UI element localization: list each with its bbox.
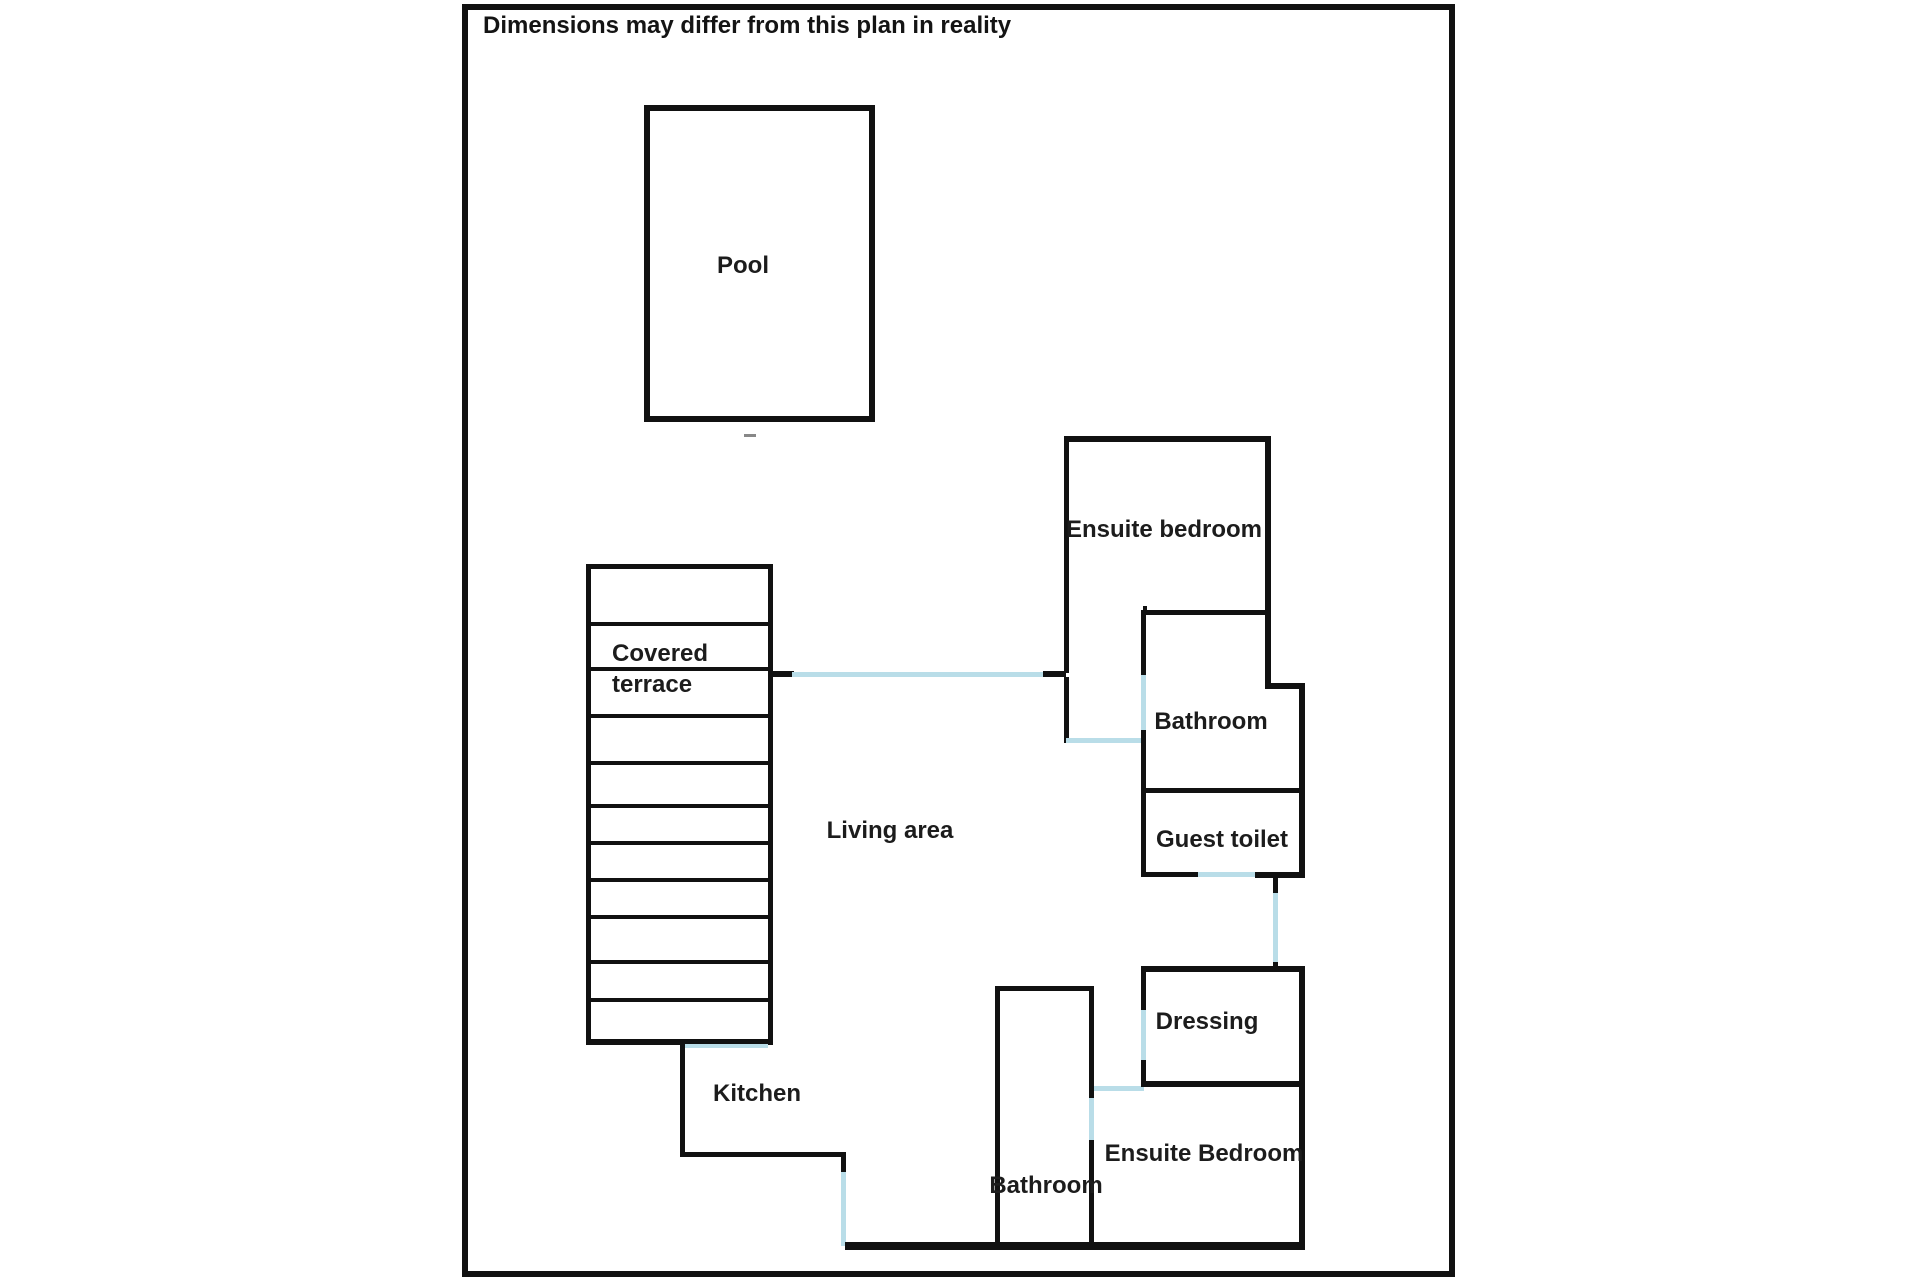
pool-wall-left: [644, 105, 650, 422]
dressing-door-opening: [1141, 1010, 1146, 1060]
bathroom1-wall-top: [1141, 610, 1268, 615]
terrace-slat-8: [586, 915, 773, 919]
label-ensuite-bedroom-top: Ensuite bedroom: [1066, 516, 1262, 544]
terrace-bottom-door-opening: [683, 1044, 768, 1048]
kitchen-wall-left: [680, 1043, 685, 1157]
terrace-slat-3: [586, 714, 773, 718]
label-kitchen: Kitchen: [713, 1080, 801, 1108]
ensuite1-wall-top: [1064, 436, 1271, 442]
outer-border-left: [462, 4, 468, 1277]
dressing-wall-top: [1141, 966, 1305, 972]
terrace-wall-top: [586, 564, 773, 569]
label-bathroom-right: Bathroom: [1154, 708, 1267, 736]
terrace-slat-4: [586, 761, 773, 765]
kitchen-door-opening: [841, 1172, 846, 1246]
bathroom1-wall-left-a: [1141, 610, 1146, 675]
bathroom1-wall-right: [1299, 683, 1305, 877]
terrace-slat-7: [586, 878, 773, 882]
label-guest-toilet: Guest toilet: [1156, 826, 1288, 854]
bathroom1-wall-left-b: [1141, 730, 1146, 875]
bathroom2-wall-top: [995, 986, 1093, 991]
bathroom2-wall-left: [995, 986, 1000, 1247]
outer-border-top: [462, 4, 1455, 10]
hall-window-opening: [1094, 1086, 1144, 1091]
terrace-slat-9: [586, 960, 773, 964]
ensuite1-wall-left-b: [1064, 677, 1069, 743]
guest-toilet-wall-top: [1141, 788, 1305, 793]
dressing-wall-right: [1299, 966, 1305, 1087]
pool-wall-bottom: [644, 416, 875, 422]
dressing-wall-bottom: [1141, 1081, 1305, 1087]
label-living-area: Living area: [827, 817, 954, 845]
terrace-slat-10: [586, 998, 773, 1002]
bathroom2-door-opening: [1089, 1098, 1094, 1140]
guest-toilet-wall-bottom-b: [1255, 872, 1305, 878]
living-glass-wall-stub: [1043, 671, 1066, 677]
label-dressing: Dressing: [1156, 1008, 1259, 1036]
corridor-stub-top: [1273, 877, 1278, 893]
dressing-wall-left-a: [1141, 966, 1146, 1010]
guest-toilet-wall-bottom-a: [1141, 872, 1198, 877]
outer-border-bottom: [462, 1271, 1455, 1277]
label-pool: Pool: [717, 252, 769, 280]
pool-wall-right: [869, 105, 875, 422]
ensuite1-wall-right: [1265, 436, 1271, 689]
label-bathroom-bottom: Bathroom: [989, 1172, 1102, 1200]
outer-border-right: [1449, 4, 1455, 1277]
kitchen-wall-bottom: [680, 1152, 846, 1157]
terrace-slat-1: [586, 622, 773, 626]
disclaimer-text: Dimensions may differ from this plan in …: [483, 12, 1011, 40]
terrace-slat-6: [586, 841, 773, 845]
pool-tick-mark: [744, 434, 756, 437]
living-glass-wall-opening: [792, 672, 1043, 677]
floor-plan: Dimensions may differ from this plan in …: [0, 0, 1920, 1280]
ensuite1-wall-left-a: [1064, 436, 1069, 673]
pool-wall-top: [644, 105, 875, 111]
ensuite1-window-opening: [1066, 738, 1143, 743]
bathroom2-wall-right-a: [1089, 986, 1094, 1098]
guest-toilet-door-opening: [1198, 872, 1255, 877]
kitchen-door-stub: [841, 1152, 846, 1172]
label-ensuite-bedroom-bottom: Ensuite Bedroom: [1105, 1140, 1304, 1168]
terrace-door-stub: [768, 671, 794, 677]
bathroom1-door-opening: [1141, 675, 1146, 730]
house-wall-bottom: [845, 1242, 1305, 1250]
terrace-slat-5: [586, 804, 773, 808]
corridor-door-opening: [1273, 893, 1278, 962]
label-covered-terrace: Covered terrace: [612, 638, 708, 700]
